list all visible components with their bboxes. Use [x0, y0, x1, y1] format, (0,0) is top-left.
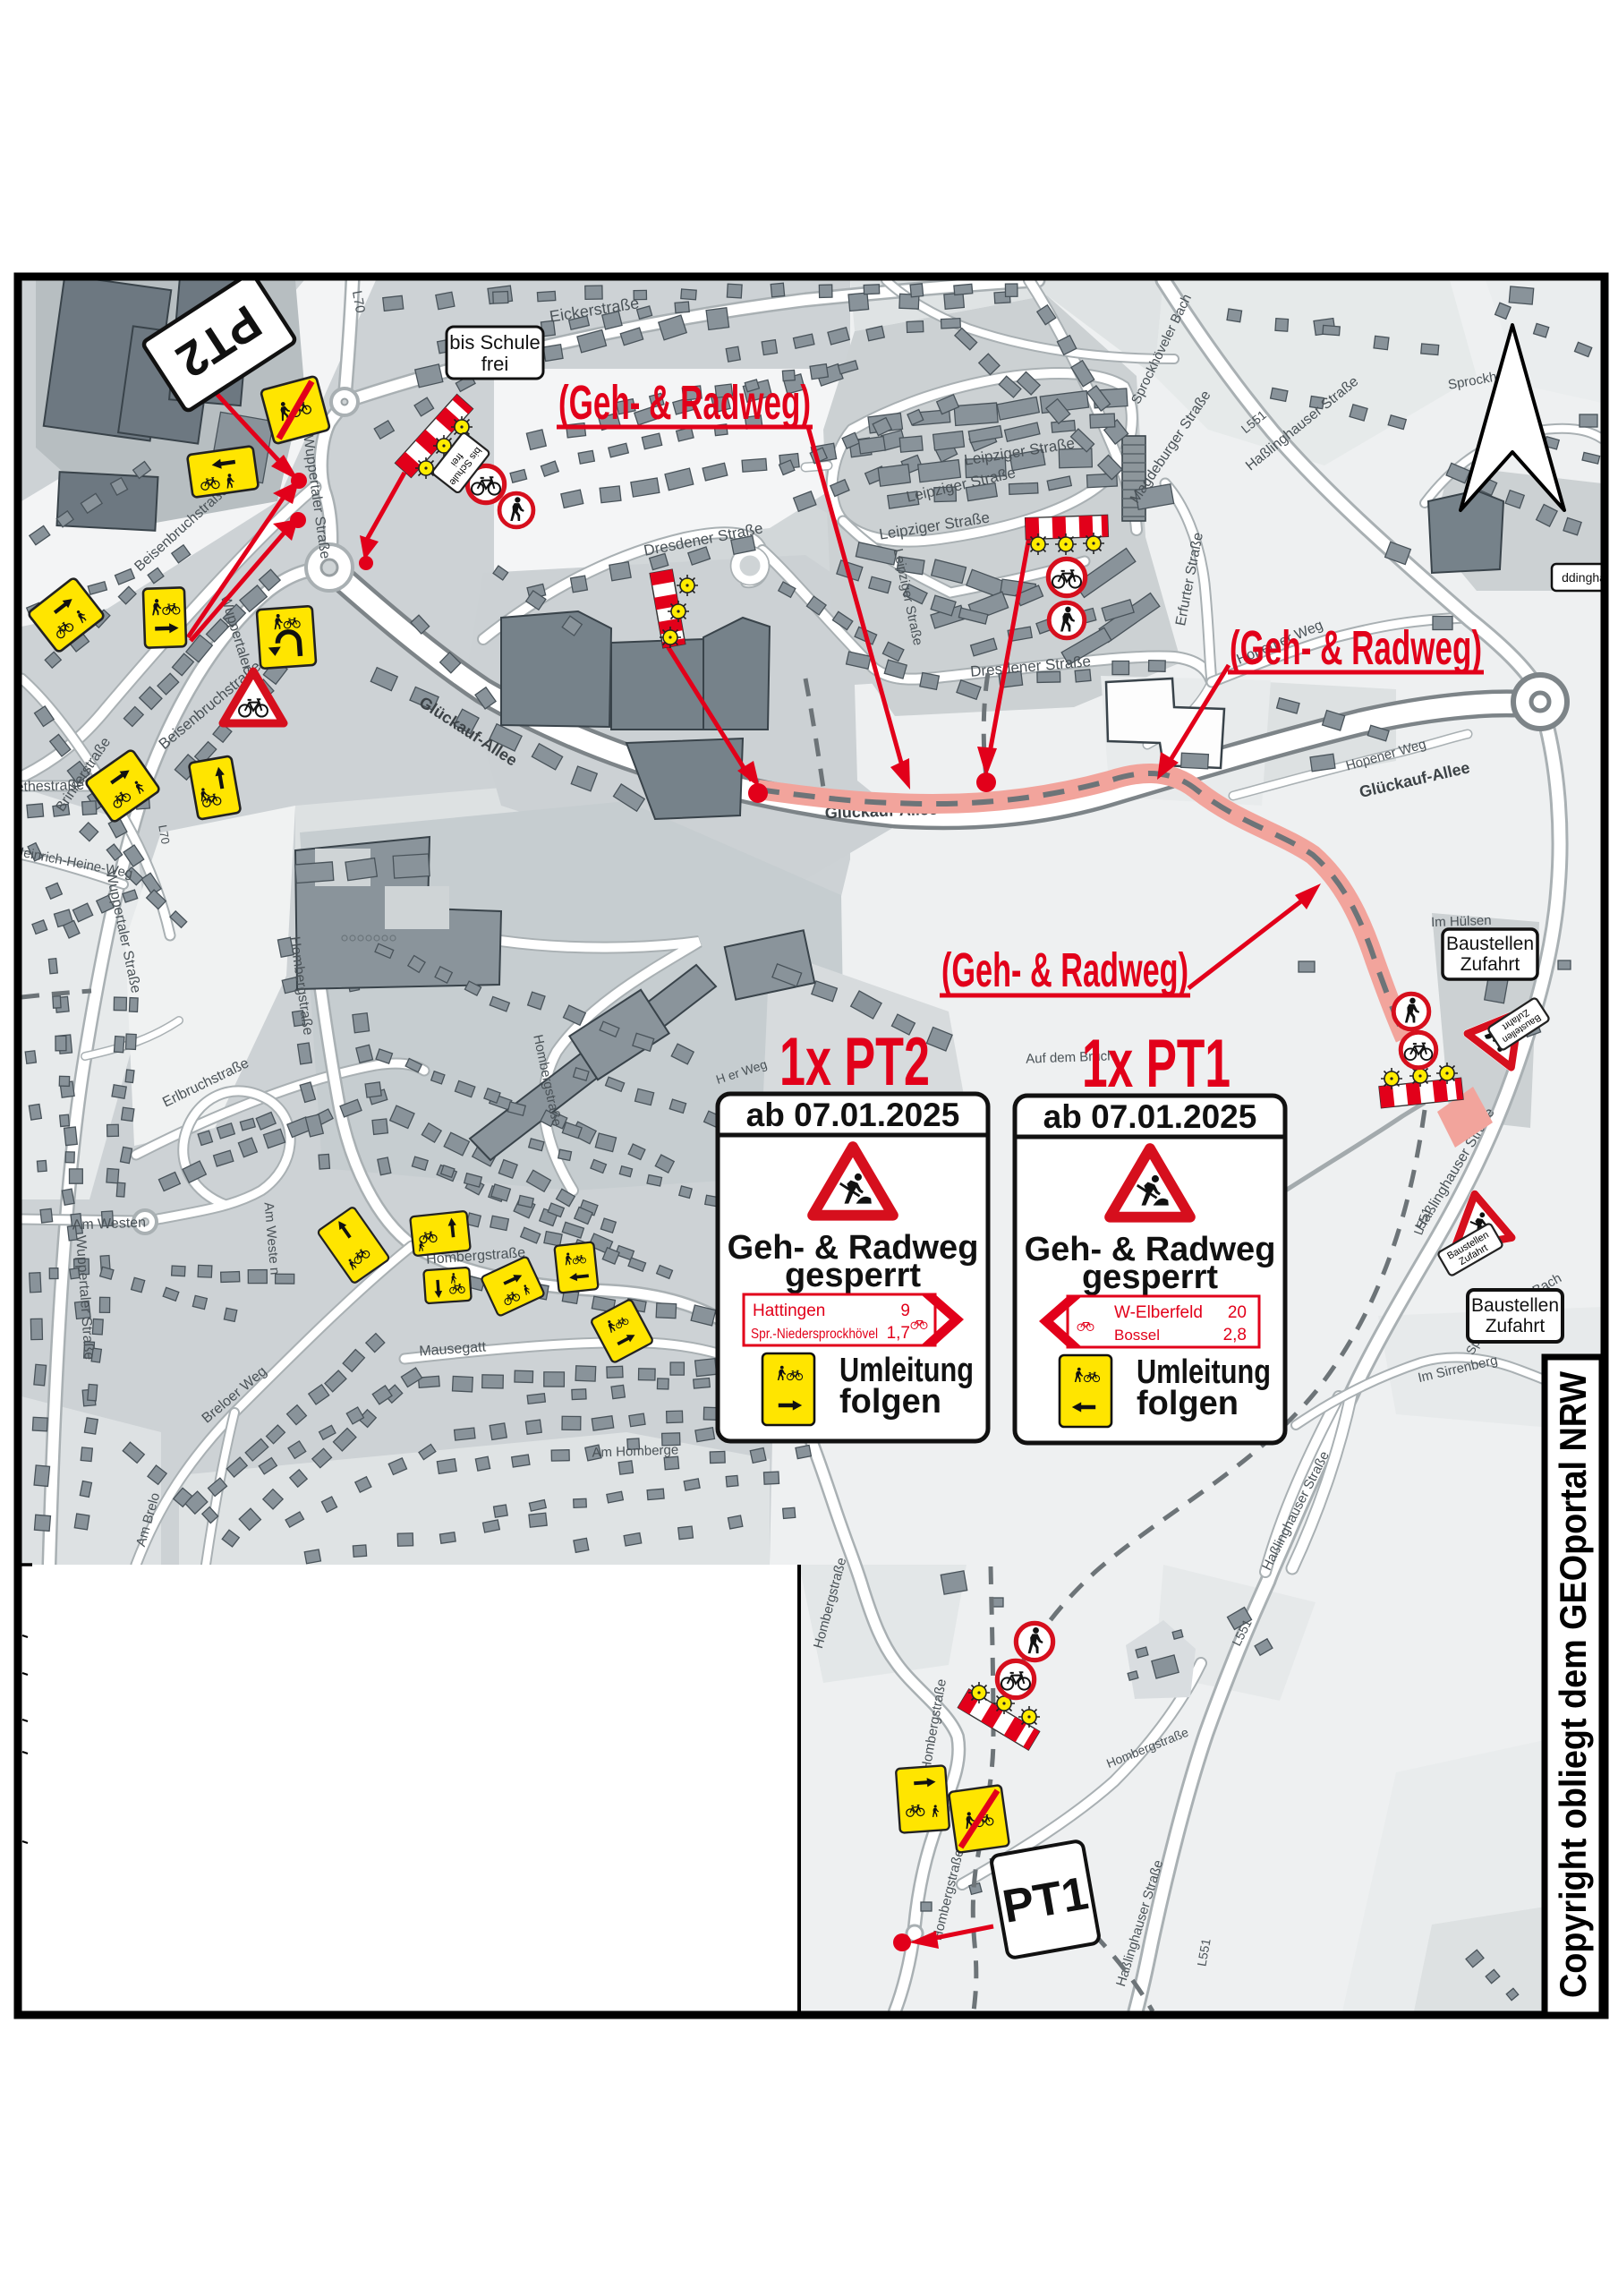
svg-text:Baustellen: Baustellen: [1446, 934, 1534, 954]
svg-text:Spr.-Niedersprockhövel: Spr.-Niedersprockhövel: [751, 1327, 878, 1342]
svg-text:folgen: folgen: [839, 1383, 941, 1421]
svg-text:2,8: 2,8: [1223, 1326, 1247, 1344]
svg-text:ethestraße: ethestraße: [15, 778, 84, 796]
svg-text:Baustellen: Baustellen: [1471, 1295, 1559, 1316]
svg-text:ab 07.01.2025: ab 07.01.2025: [746, 1097, 960, 1133]
svg-text:Bossel: Bossel: [1114, 1327, 1160, 1344]
svg-text:20: 20: [1228, 1303, 1247, 1322]
svg-text:Hattingen: Hattingen: [753, 1302, 825, 1320]
svg-text:(Geh- & Radweg): (Geh- & Radweg): [558, 376, 811, 430]
svg-text:W-Elberfeld: W-Elberfeld: [1114, 1303, 1203, 1322]
svg-text:1x PT1: 1x PT1: [1082, 1026, 1231, 1102]
svg-text:Copyright obliegt dem GEOporta: Copyright obliegt dem GEOportal NRW: [1552, 1371, 1594, 1998]
svg-text:folgen: folgen: [1137, 1385, 1239, 1422]
svg-text:frei: frei: [481, 353, 509, 375]
svg-text:Zufahrt: Zufahrt: [1460, 954, 1520, 975]
svg-text:gesperrt: gesperrt: [1082, 1259, 1218, 1296]
svg-text:(Geh- & Radweg): (Geh- & Radweg): [941, 943, 1188, 997]
svg-text:9: 9: [900, 1302, 910, 1320]
svg-text:Zufahrt: Zufahrt: [1486, 1316, 1546, 1336]
svg-text:(Geh- & Radweg): (Geh- & Radweg): [1230, 621, 1482, 675]
svg-text:Am Westen: Am Westen: [72, 1216, 146, 1233]
svg-text:Am Homberge: Am Homberge: [592, 1442, 678, 1460]
svg-text:1,7: 1,7: [887, 1324, 910, 1343]
svg-text:bis Schule: bis Schule: [449, 331, 541, 354]
svg-text:ddingha: ddingha: [1562, 570, 1606, 585]
svg-text:ab 07.01.2025: ab 07.01.2025: [1043, 1098, 1257, 1135]
svg-text:gesperrt: gesperrt: [785, 1257, 921, 1294]
svg-text:1x PT2: 1x PT2: [779, 1024, 930, 1100]
